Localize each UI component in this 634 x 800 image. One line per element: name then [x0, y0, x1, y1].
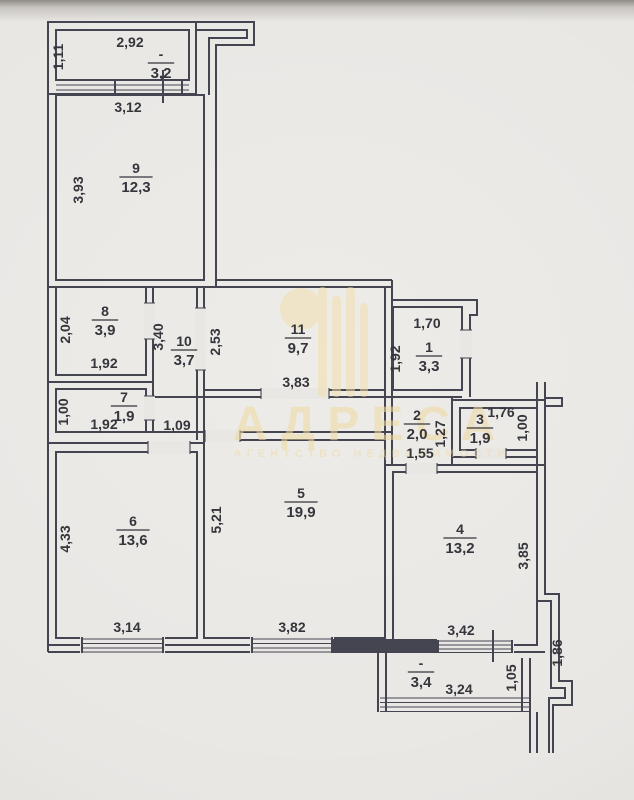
dimension-label: 1,70 [413, 315, 440, 331]
room-number: 4 [456, 521, 464, 537]
room-area: 19,9 [286, 504, 315, 521]
room-area: 3,4 [411, 674, 433, 691]
dimension-label: 3,42 [447, 622, 474, 638]
dimension-label: 3,83 [282, 374, 309, 390]
room-area: 13,2 [445, 540, 474, 557]
room-area: 3,2 [151, 65, 172, 82]
room-area: 1,9 [470, 430, 491, 447]
room-number: 1 [425, 339, 433, 355]
dimension-ticks [163, 70, 493, 662]
dimension-label: 3,82 [278, 619, 305, 635]
room-number: 7 [120, 389, 128, 405]
dimension-label: 3,93 [70, 176, 86, 203]
floor-plan-svg: АДРЕСА АГЕНТСТВО НЕДВИЖИМОСТИ -3,2912,38… [0, 0, 634, 800]
dimension-label: 1,86 [549, 639, 565, 666]
room-area: 9,7 [288, 340, 309, 357]
dimension-label: 1,92 [90, 355, 117, 371]
dimension-label: 2,04 [57, 316, 73, 343]
dimension-label: 3,85 [515, 542, 531, 569]
room-number: 6 [129, 513, 137, 529]
dimension-label: 2,53 [207, 328, 223, 355]
room-and-dimension-labels: -3,2912,383,9103,7119,713,371,922,031,96… [50, 34, 565, 697]
room-number: 2 [413, 407, 421, 423]
room-area: 3,7 [174, 352, 195, 369]
room-number: 10 [176, 333, 192, 349]
floor-plan-photo: АДРЕСА АГЕНТСТВО НЕДВИЖИМОСТИ -3,2912,38… [0, 0, 634, 800]
dimension-label: 1,27 [432, 420, 448, 447]
room-area: 2,0 [407, 426, 428, 443]
dimension-label: 1,00 [514, 414, 530, 441]
room-area: 3,9 [95, 322, 116, 339]
room-area: 12,3 [121, 179, 150, 196]
dimension-label: 2,92 [116, 34, 143, 50]
room-number: 8 [101, 303, 109, 319]
dimension-label: 1,92 [387, 345, 403, 372]
dimension-label: 3,12 [114, 99, 141, 115]
watermark-subtitle: АГЕНТСТВО НЕДВИЖИМОСТИ [234, 448, 511, 460]
dimension-label: 5,21 [208, 506, 224, 533]
dimension-label: 3,14 [113, 619, 140, 635]
dimension-label: 3,40 [150, 323, 166, 350]
dimension-label: 1,09 [163, 417, 190, 433]
dimension-label: 1,05 [503, 664, 519, 691]
solid-wall-segment [332, 639, 437, 653]
room-area: 3,3 [419, 358, 440, 375]
room-area: 13,6 [118, 532, 147, 549]
dimension-label: 1,00 [55, 398, 71, 425]
dimension-label: 1,55 [406, 445, 433, 461]
dimension-label: 3,24 [445, 681, 472, 697]
room-number: - [419, 655, 424, 671]
watermark-title: АДРЕСА [233, 398, 508, 451]
room-number: 11 [291, 321, 306, 337]
dimension-label: 1,92 [90, 416, 117, 432]
room-number: 9 [132, 160, 140, 176]
room-number: - [159, 46, 164, 62]
dimension-label: 1,11 [50, 44, 66, 71]
dimension-label: 1,76 [487, 404, 514, 420]
room-number: 5 [297, 485, 305, 501]
room-number: 3 [476, 411, 484, 427]
dimension-label: 4,33 [57, 525, 73, 552]
